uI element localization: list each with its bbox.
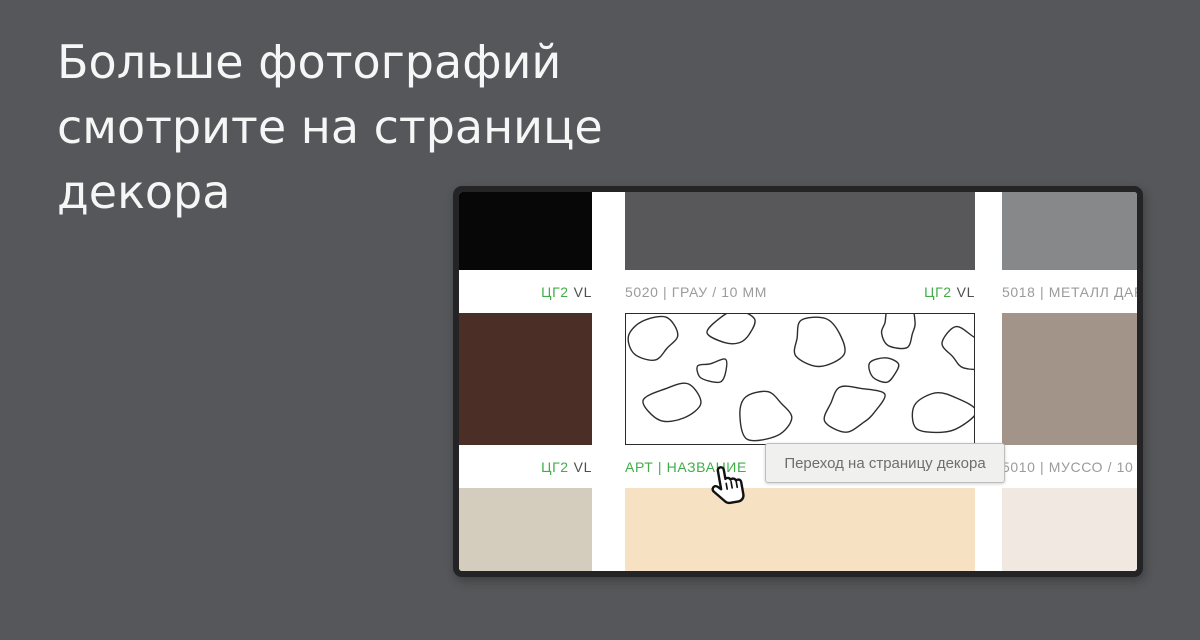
decor-code: ЦГ2 xyxy=(541,459,569,475)
decor-label-row: ЦГ2VL xyxy=(459,270,592,313)
decor-label-row: ЦГ2VL xyxy=(459,445,592,488)
decor-label-row: 5020 | ГРАУ / 10 ММ ЦГ2VL xyxy=(625,270,975,313)
decor-swatch-gray-5020[interactable] xyxy=(625,192,975,270)
decor-code-suffix: VL xyxy=(574,284,592,300)
decor-label-row: 5018 | МЕТАЛЛ ДАРК xyxy=(1002,270,1143,313)
link-tooltip: Переход на страницу декора xyxy=(765,443,1005,483)
decor-code: ЦГ2 xyxy=(541,284,569,300)
decor-code-link[interactable]: ЦГ2VL xyxy=(541,284,592,300)
decor-swatch-black[interactable] xyxy=(459,192,592,270)
decor-code-suffix: VL xyxy=(574,459,592,475)
decor-swatch-light-gray-5018[interactable] xyxy=(1002,192,1143,270)
hand-pointer-cursor-icon xyxy=(707,461,750,509)
promo-slide: Больше фотографий смотрите на странице д… xyxy=(0,0,1200,640)
decor-page-screenshot: ЦГ2VL 5020 | ГРАУ / 10 ММ ЦГ2VL 5018 | М… xyxy=(453,186,1143,577)
decor-swatch-taupe-5010[interactable] xyxy=(1002,313,1143,445)
decor-swatch-greige[interactable] xyxy=(459,488,592,577)
title-line-2: смотрите на странице xyxy=(57,95,603,160)
decor-code-link[interactable]: ЦГ2VL xyxy=(924,284,975,300)
decor-name-link[interactable]: 5018 | МЕТАЛЛ ДАРК xyxy=(1002,284,1143,300)
decor-swatch-art-pattern[interactable] xyxy=(625,313,975,445)
decor-grid: ЦГ2VL 5020 | ГРАУ / 10 ММ ЦГ2VL 5018 | М… xyxy=(459,192,1137,571)
decor-name-link[interactable]: 5010 | МУССО / 10 ММ xyxy=(1002,459,1143,475)
decor-swatch-cream[interactable] xyxy=(625,488,975,577)
decor-name-link[interactable]: 5020 | ГРАУ / 10 ММ xyxy=(625,284,767,300)
decor-label-row: 5010 | МУССО / 10 ММ xyxy=(1002,445,1143,488)
decor-swatch-brown[interactable] xyxy=(459,313,592,445)
decor-code-link[interactable]: ЦГ2VL xyxy=(541,459,592,475)
decor-code: ЦГ2 xyxy=(924,284,952,300)
title-line-1: Больше фотографий xyxy=(57,30,603,95)
decor-code-suffix: VL xyxy=(957,284,975,300)
decor-swatch-off-white[interactable] xyxy=(1002,488,1143,577)
art-squiggle-pattern-image xyxy=(626,314,974,444)
